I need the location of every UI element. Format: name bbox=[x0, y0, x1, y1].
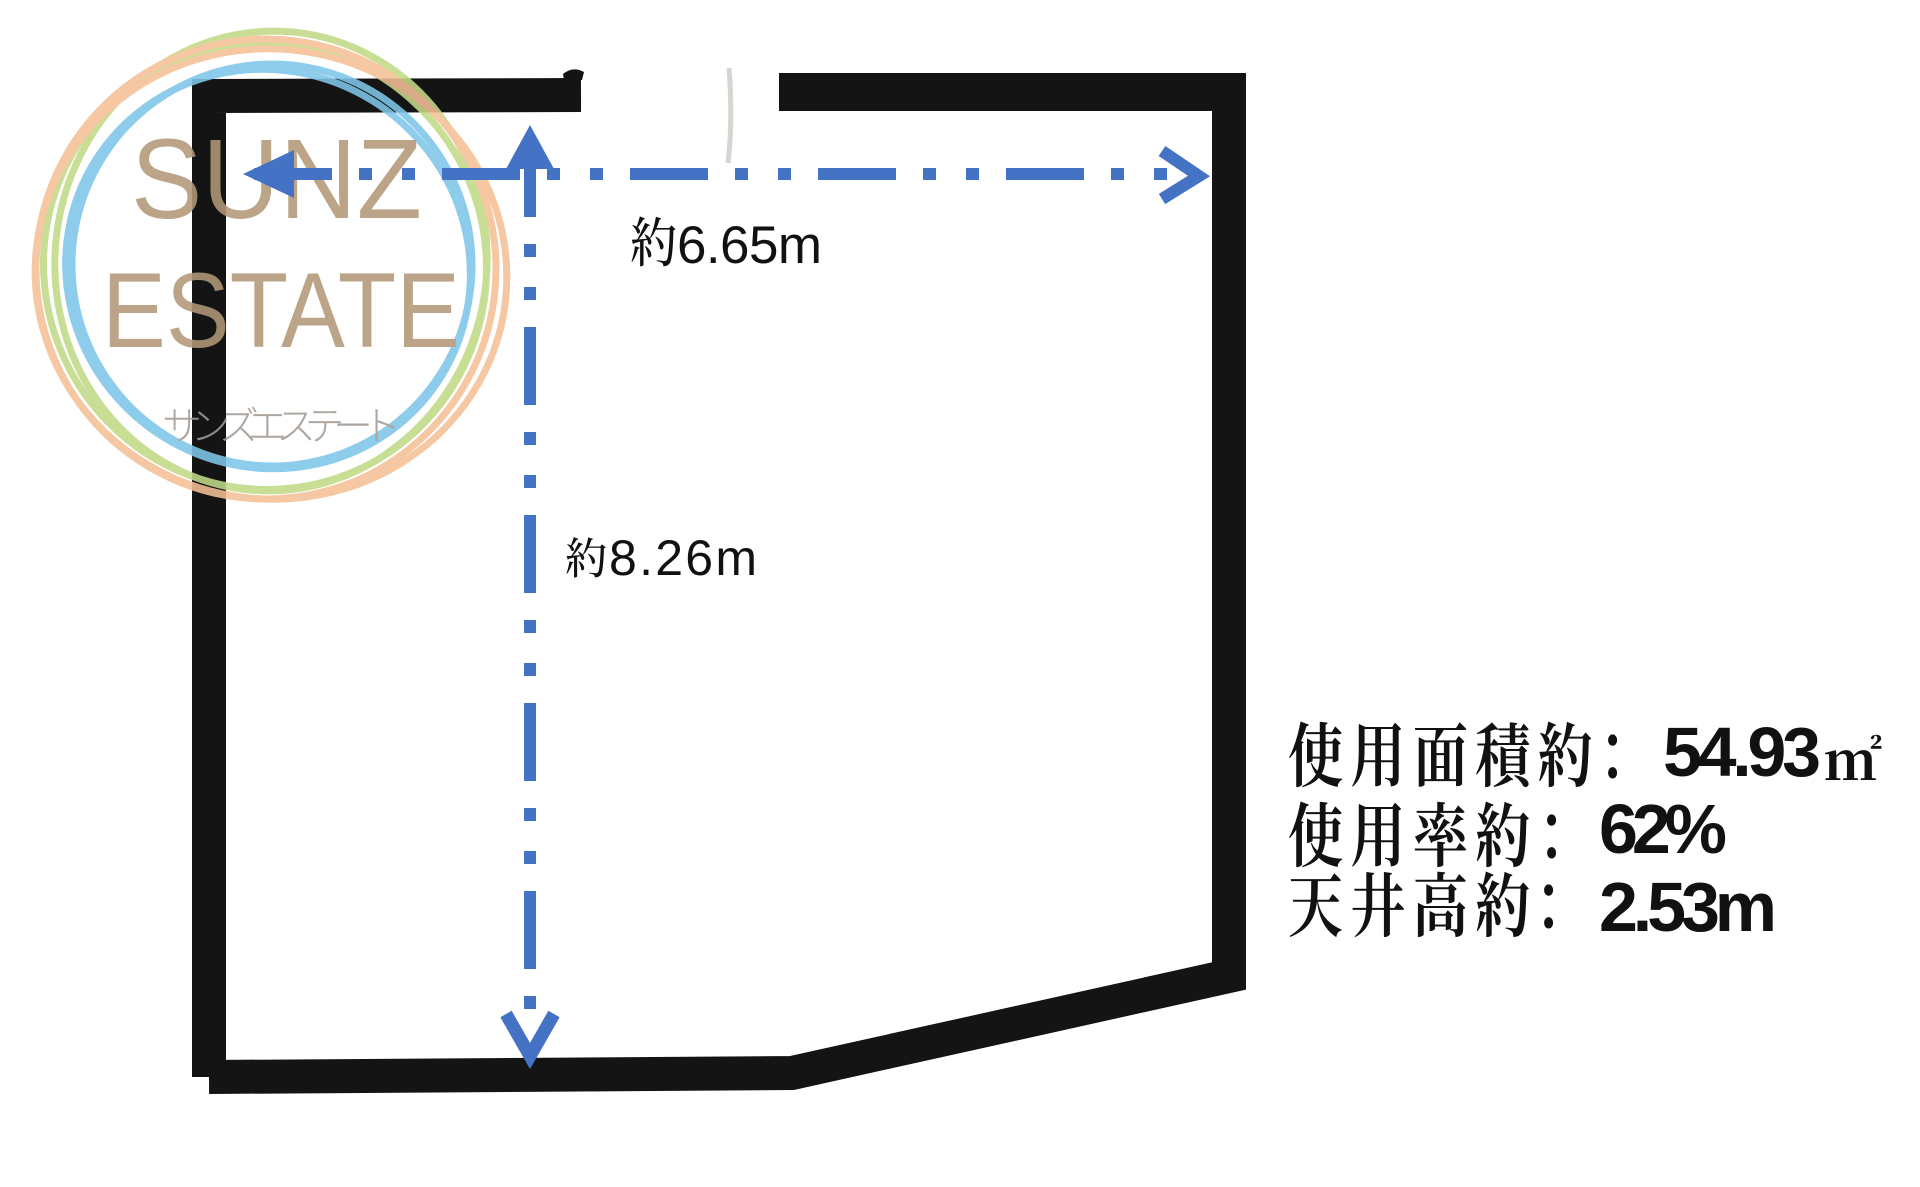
svg-text:54.93: 54.93 bbox=[1663, 713, 1821, 791]
svg-text:8.26m: 8.26m bbox=[609, 530, 757, 586]
svg-text:6.65m: 6.65m bbox=[677, 216, 822, 275]
svg-text:2.53m: 2.53m bbox=[1599, 868, 1777, 946]
svg-text:62%: 62% bbox=[1599, 790, 1727, 868]
svg-text:ESTATE: ESTATE bbox=[102, 250, 460, 370]
